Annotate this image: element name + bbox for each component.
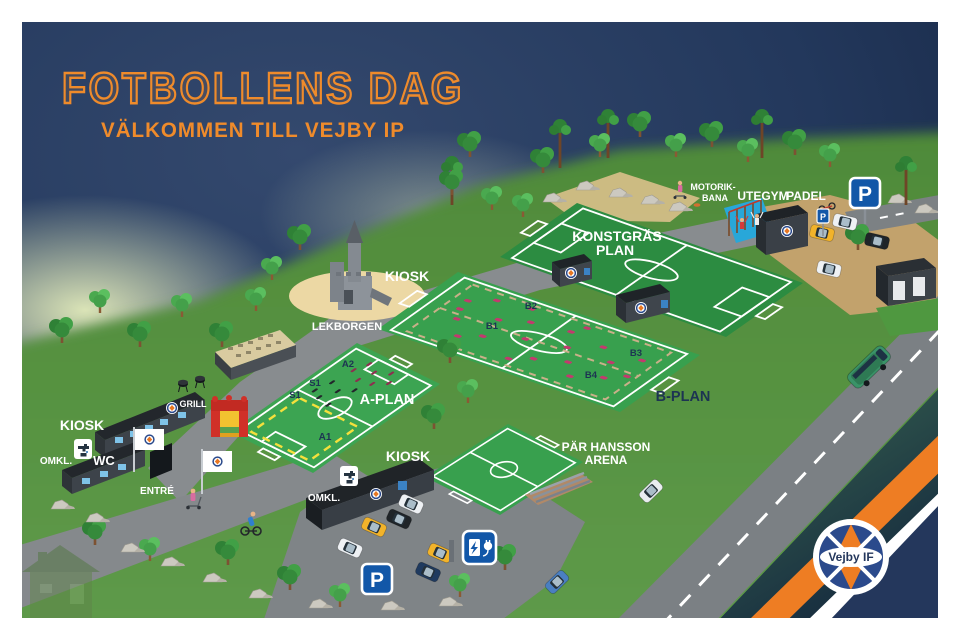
label-motorik-line1: MOTORIK- [690,182,735,192]
label-kiosk-west: KIOSK [60,417,104,433]
ev-charging-sign [463,531,496,564]
poster-subtitle: VÄLKOMMEN TILL VEJBY IP [101,119,405,142]
label-entre: ENTRÉ [140,484,174,497]
label-konstgras-line2: PLAN [596,242,634,258]
label-kiosk-north: KIOSK [385,268,429,284]
parking-sign-south: P [362,564,392,594]
label-a-plan: A-PLAN [360,392,415,408]
event-map-poster: P P P KONSTGRÄS PLAN MOTORIK- BANA UTEGY… [0,0,960,640]
parking-sign-letter: P [820,212,826,222]
info-sign [398,481,407,490]
label-kiosk-south: KIOSK [386,448,430,464]
label-grill: GRILL [180,399,207,409]
info-sign [584,268,590,275]
label-motorik-line2: BANA [702,193,728,203]
garage-door [913,277,925,296]
zone-label-b1: B1 [486,321,499,332]
zone-label-a2: A2 [342,359,354,370]
club-roundel [635,302,647,314]
label-padel: PADEL [786,189,826,203]
water-tap-icon-west [74,439,92,459]
label-par-hansson-line1: PÄR HANSSON [562,439,651,454]
bouncy-castle [211,395,248,437]
castle-door [344,290,353,304]
club-logo-text: Vejby IF [828,550,873,564]
zone-label-a1: A1 [319,432,332,443]
label-b-plan: B-PLAN [656,389,711,405]
garage-door [893,281,905,300]
info-sign [661,300,668,308]
label-lekborgen: LEKBORGEN [312,321,382,333]
label-omkl-south: OMKL. [308,493,340,504]
label-omkl-west: OMKL. [40,456,72,467]
map-canvas: P P P KONSTGRÄS PLAN MOTORIK- BANA UTEGY… [0,0,960,640]
label-wc: WC [93,453,115,468]
vejby-if-logo: Vejby IF [813,519,889,595]
club-roundel [565,267,577,279]
parking-sign-letter: P [370,569,384,592]
dog [694,203,701,207]
zone-label-b4: B4 [585,370,598,381]
zone-label-s1-lower: S1 [289,390,301,401]
club-roundel [166,402,178,414]
utegym-building [756,205,808,255]
poster-title: FOTBOLLENS DAG [62,64,464,113]
zone-label-b3: B3 [630,348,642,359]
garage [876,258,936,306]
label-utegym: UTEGYM [737,189,788,203]
zone-label-s1-upper: S1 [309,378,321,389]
club-roundel [781,225,793,237]
label-par-hansson-line2: ARENA [585,453,628,467]
parking-sign-letter: P [858,183,872,206]
zone-label-b2: B2 [525,301,537,312]
plug-icon [484,542,492,550]
water-tap-icon-south [340,466,358,486]
club-roundel [370,488,382,500]
